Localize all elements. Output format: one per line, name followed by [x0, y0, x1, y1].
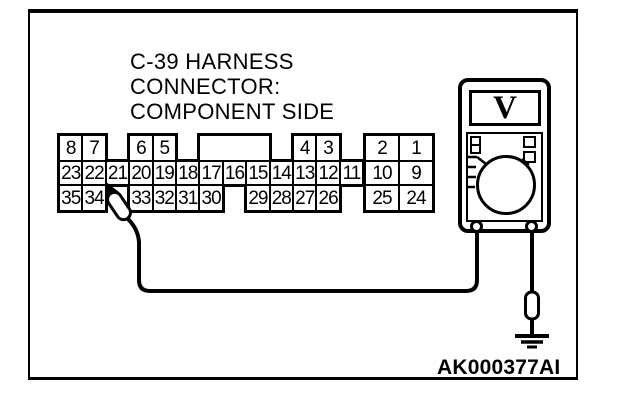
connector-blank-cell [198, 134, 270, 162]
battery-icon-divider [472, 144, 479, 146]
connector-pin-cell: 4 [292, 134, 317, 162]
connector-pin-cell: 12 [315, 160, 340, 186]
terminal-left [470, 220, 483, 233]
connector-pin-cell: 20 [128, 160, 153, 186]
connector-pin-cell: 31 [175, 184, 200, 212]
connector-pin-cell: 2 [364, 134, 400, 162]
connector-pin-cell: 25 [364, 184, 400, 212]
title-line-2: CONNECTOR: [130, 74, 334, 99]
figure-code: AK000377AI [437, 356, 562, 380]
connector-pin-cell: 15 [245, 160, 270, 186]
connector-pin-cell: 9 [398, 160, 434, 186]
connector-pin-cell: 10 [364, 160, 400, 186]
connector-pin-cell: 32 [152, 184, 177, 212]
connector-pin-cell: 21 [105, 160, 130, 186]
connector-pin-cell: 16 [222, 160, 247, 186]
connector-pin-cell: 28 [269, 184, 294, 212]
connector-pin-cell: 34 [81, 184, 106, 212]
connector-pin-cell: 6 [128, 134, 153, 162]
voltmeter-symbol: V [493, 92, 517, 125]
connector-pin-cell: 8 [58, 134, 83, 162]
indicator-square-top-icon [523, 136, 536, 148]
connector-pin-cell: 26 [315, 184, 340, 212]
connector-pin-cell: 35 [58, 184, 83, 212]
connector-pin-cell: 11 [339, 160, 364, 186]
terminal-right [525, 220, 538, 233]
diagram-stage: C-39 HARNESS CONNECTOR: COMPONENT SIDE 8… [0, 0, 624, 410]
connector-pin-cell: 3 [315, 134, 340, 162]
connector-pin-cell: 17 [198, 160, 223, 186]
connector-pin-cell: 1 [398, 134, 434, 162]
connector-pin-cell: 14 [269, 160, 294, 186]
connector-pin-cell: 13 [292, 160, 317, 186]
connector-pin-cell: 23 [58, 160, 83, 186]
battery-icon [470, 136, 481, 154]
connector-pin-cell: 22 [81, 160, 106, 186]
connector-pin-cell: 27 [292, 184, 317, 212]
title-line-1: C-39 HARNESS [130, 49, 334, 74]
connector-pin-cell: 24 [398, 184, 434, 212]
connector-pin-cell: 30 [198, 184, 223, 212]
voltmeter-display: V [469, 90, 541, 126]
connector-pin-cell: 7 [81, 134, 106, 162]
connector-pin-cell: 33 [128, 184, 153, 212]
connector-title: C-39 HARNESS CONNECTOR: COMPONENT SIDE [130, 49, 334, 124]
connector-pin-cell: 18 [175, 160, 200, 186]
connector-pin-cell: 29 [245, 184, 270, 212]
connector-pin-cell: 19 [152, 160, 177, 186]
connector-pin-cell: 5 [152, 134, 177, 162]
title-line-3: COMPONENT SIDE [130, 99, 334, 124]
dial-knob [476, 155, 536, 215]
